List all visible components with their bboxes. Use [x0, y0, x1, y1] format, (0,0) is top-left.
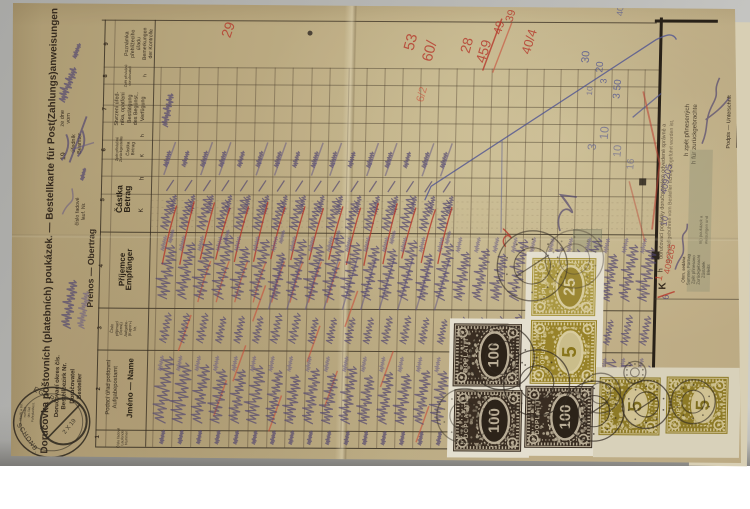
svg-text:DOPLATIT: DOPLATIT [534, 399, 542, 434]
svg-text:10: 10 [585, 86, 595, 96]
svg-text:39: 39 [504, 8, 519, 23]
svg-text:3: 3 [598, 78, 608, 84]
svg-text:100: 100 [485, 343, 503, 368]
svg-text:100: 100 [557, 404, 575, 429]
svg-text:DOPLATIT: DOPLATIT [539, 334, 547, 369]
svg-text:6/2: 6/2 [414, 86, 430, 104]
svg-text:40/4: 40/4 [518, 27, 540, 56]
svg-text:100: 100 [486, 408, 504, 433]
svg-text:16: 16 [625, 158, 637, 170]
svg-text:3 50: 3 50 [611, 79, 624, 100]
svg-text:10: 10 [658, 215, 670, 227]
svg-text:DOPLATIT: DOPLATIT [463, 403, 471, 438]
svg-text:10: 10 [597, 125, 612, 140]
svg-text:Fahrplanbest.: Fahrplanbest. [30, 402, 35, 422]
svg-text:409205: 409205 [662, 243, 678, 274]
svg-text:409205: 409205 [658, 163, 674, 194]
svg-text:20: 20 [594, 61, 606, 73]
svg-text:3: 3 [585, 143, 600, 151]
svg-text:5: 5 [559, 346, 581, 357]
svg-text:10: 10 [611, 145, 624, 158]
svg-text:30: 30 [579, 50, 592, 63]
svg-text:5: 5 [693, 399, 714, 410]
svg-text:60/: 60/ [419, 38, 441, 63]
svg-text:53: 53 [401, 32, 422, 52]
svg-text:DOPLATIT: DOPLATIT [462, 337, 470, 372]
svg-text:1: 1 [654, 274, 666, 282]
svg-text:28: 28 [457, 36, 477, 55]
svg-text:29: 29 [218, 20, 238, 40]
